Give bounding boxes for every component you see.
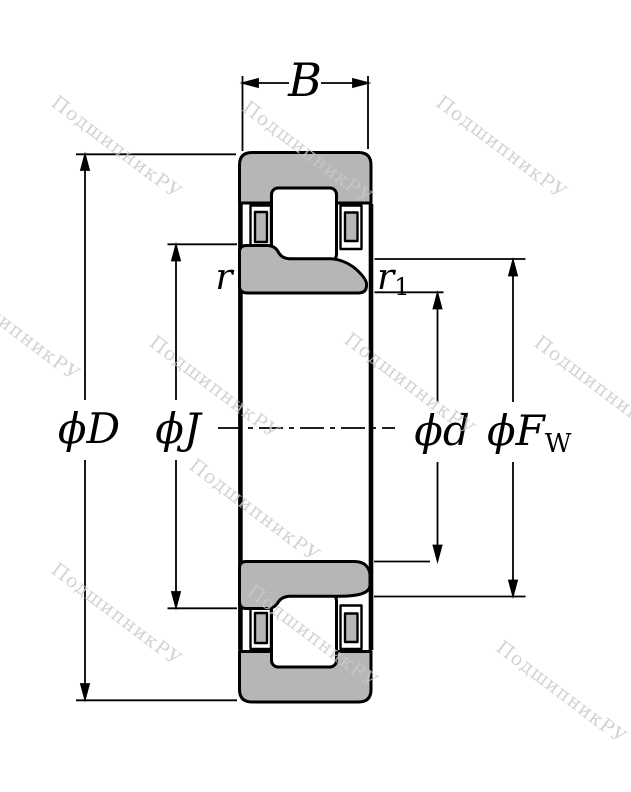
watermark: ПодшипникРУ	[432, 91, 571, 203]
arrowhead-Fw-bottom	[509, 581, 517, 596]
cage-bar-top-right	[345, 213, 358, 242]
arrowhead-D-bottom	[81, 684, 89, 699]
arrowhead-Fw-top	[509, 261, 517, 276]
dim-rib-diameter-label: ϕJ	[155, 404, 203, 453]
chamfer-r1-label: r1	[377, 257, 410, 301]
watermark: ПодшипникРУ	[185, 454, 324, 566]
cage-bar-bottom-left	[255, 613, 267, 643]
dim-outer-diameter-label: ϕD	[58, 404, 120, 453]
watermark: ПодшипникРУ	[492, 636, 631, 748]
dim-raceway-diameter-label: ϕFW	[487, 406, 572, 459]
arrowhead-D-top	[81, 155, 89, 170]
arrowhead-d-bottom	[434, 546, 442, 561]
arrowhead-d-top	[434, 294, 442, 309]
dim-width-label: B	[287, 53, 322, 107]
arrowhead-J-top	[172, 246, 180, 261]
watermark: ПодшипникРУ	[340, 328, 479, 440]
watermark: ПодшипникРУ	[530, 331, 631, 443]
roller-top	[272, 188, 337, 261]
cage-bar-bottom-right	[345, 614, 358, 643]
watermark: ПодшипникРУ	[0, 273, 84, 385]
arrowhead-B-right	[353, 79, 368, 87]
cage-bar-top-left	[255, 212, 267, 242]
bearing-cross-section-drawing: B ϕD ϕJ ϕd ϕFW r r1 ПодшипникРУ Подшипни…	[0, 0, 631, 792]
chamfer-r-label: r	[215, 257, 234, 298]
arrowhead-B-left	[243, 79, 258, 87]
arrowhead-J-bottom	[172, 592, 180, 607]
watermark: ПодшипникРУ	[47, 558, 186, 670]
bearing-drawing-page: B ϕD ϕJ ϕd ϕFW r r1 ПодшипникРУ Подшипни…	[0, 0, 631, 792]
watermark: ПодшипникРУ	[47, 91, 186, 203]
